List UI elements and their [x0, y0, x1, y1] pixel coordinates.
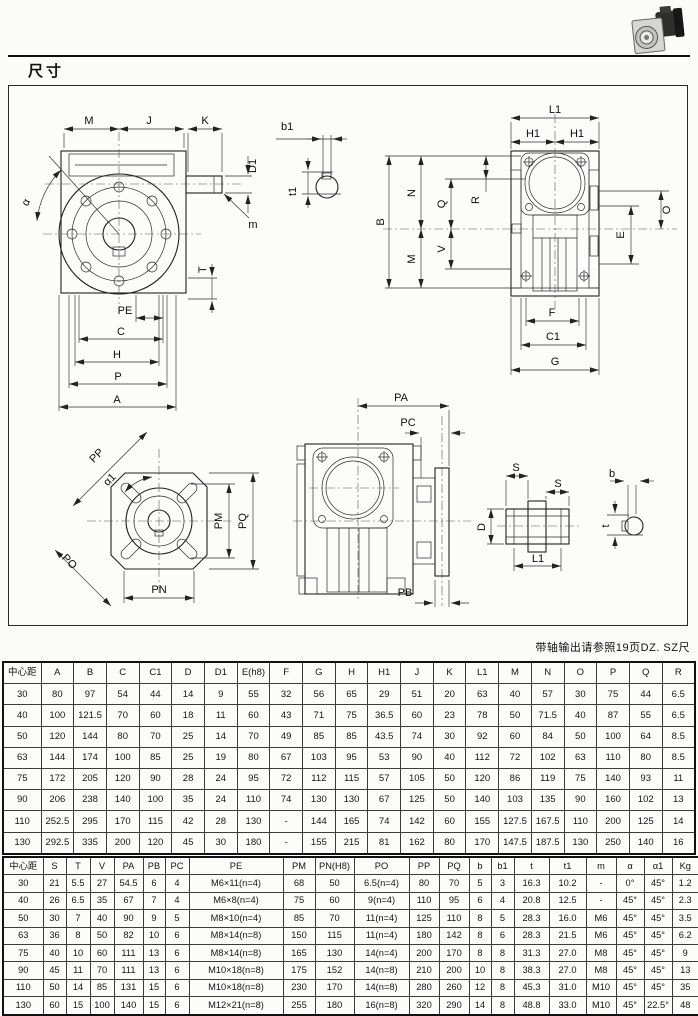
table-row: 40100121.5706018116043717536.56023785071… [3, 705, 695, 726]
table-cell: 63 [3, 927, 43, 944]
table-cell: 7 [143, 892, 165, 909]
table-cell: 75 [3, 944, 43, 961]
table-cell: 130 [3, 832, 41, 854]
table-cell: 1.2 [672, 875, 698, 892]
table-cell: 63 [466, 684, 499, 705]
table-cell: 100 [41, 705, 74, 726]
table-cell: 7 [66, 910, 90, 927]
table-cell: 110 [3, 811, 41, 832]
table-cell: 90 [114, 910, 143, 927]
table-cell: 13 [672, 962, 698, 979]
dim-front-c-label: C [117, 326, 125, 338]
table-row: 110252.52951701154228130-144165741426015… [3, 811, 695, 832]
table-cell: 45.3 [514, 979, 549, 996]
column-header: D1 [204, 662, 237, 684]
table-cell: 55 [629, 705, 662, 726]
table-cell: 22.5° [644, 997, 672, 1015]
table-cell: 28.3 [514, 910, 549, 927]
dim-front-d1-label: D1 [247, 159, 259, 173]
dimensions-table-1: 中心距ABCC1DD1E(h8)FGHH1JKL1MNOPQR308097544… [2, 661, 696, 855]
table-cell: 170 [315, 979, 354, 996]
table-cell: 111 [114, 944, 143, 961]
table-cell: 6 [165, 997, 189, 1015]
column-header: b [469, 857, 491, 875]
table-cell: 45° [616, 944, 644, 961]
table-cell: 10 [143, 927, 165, 944]
dim-side-n-label: N [406, 189, 418, 197]
table-cell: 50 [433, 790, 466, 811]
catalog-page: { "page": { "heading": "尺寸", "note": "带轴… [0, 0, 698, 1011]
shaft-output-note: 带轴输出请参照19页DZ. SZ尺 [388, 639, 690, 655]
table-cell: 95 [335, 747, 368, 768]
table-cell: 110 [237, 790, 270, 811]
table-cell: 110 [409, 892, 439, 909]
table-cell: 8 [491, 944, 514, 961]
table-cell: 120 [466, 768, 499, 789]
header-row: 中心距STVPAPBPCPEPMPN(H8)POPPPQbb1tt1mαα1Kg [3, 857, 698, 875]
table-cell: 140 [114, 997, 143, 1015]
table-cell: 100 [90, 997, 114, 1015]
table-cell: 27.0 [549, 962, 586, 979]
table-cell: 40 [499, 684, 532, 705]
table-cell: 102 [531, 747, 564, 768]
dim-side-g-label: G [551, 356, 560, 368]
dim-flange-pm-label: PM [213, 513, 225, 530]
table-row: 633685082106M8×14(n=8)15011511(n=4)18014… [3, 927, 698, 944]
dim-shaft-t-label: t [600, 524, 612, 527]
table-cell: 21 [43, 875, 66, 892]
table-cell: 45° [644, 962, 672, 979]
table-cell: 48.8 [514, 997, 549, 1015]
table-cell: 144 [303, 811, 336, 832]
table-cell: 80 [433, 832, 466, 854]
table-cell: 8.5 [662, 747, 695, 768]
table-cell: 3.5 [672, 910, 698, 927]
table-cell: 119 [531, 768, 564, 789]
dimension-drawings: M J K α D1 m T PE [9, 86, 686, 624]
dim-side-c1-label: C1 [546, 331, 560, 343]
table-cell: 120 [139, 832, 172, 854]
table-cell: 67 [270, 747, 303, 768]
table-cell: 3 [491, 875, 514, 892]
table-cell: 130 [564, 832, 597, 854]
table-cell: 8.5 [662, 726, 695, 747]
table-cell: 14(n=4) [354, 944, 409, 961]
table-cell: 110 [597, 747, 630, 768]
dim-side2-pa-label: PA [394, 392, 409, 404]
table-cell: 27.0 [549, 944, 586, 961]
table-cell: 50 [315, 875, 354, 892]
table-cell: 11 [204, 705, 237, 726]
table-cell: 155 [303, 832, 336, 854]
table-cell: 51 [401, 684, 434, 705]
dim-side-h1-left-label: H1 [526, 128, 540, 140]
table-cell: 53 [368, 747, 401, 768]
table-cell: 95 [237, 768, 270, 789]
table-cell: 200 [409, 944, 439, 961]
table-cell: 24 [204, 790, 237, 811]
table-cell: M6 [586, 910, 616, 927]
table-cell: 27 [90, 875, 114, 892]
table-cell: 121.5 [74, 705, 107, 726]
table-cell: 35 [172, 790, 205, 811]
table-cell: 54 [106, 684, 139, 705]
table-cell: 6 [165, 944, 189, 961]
table-cell: 28 [172, 768, 205, 789]
table-cell: 75 [283, 892, 315, 909]
dim-shaft-l1-label: L1 [532, 553, 544, 565]
table-cell: 40 [43, 944, 66, 961]
table-cell: 150 [283, 927, 315, 944]
table-cell: 85 [283, 910, 315, 927]
table-cell: 5.5 [66, 875, 90, 892]
table-cell: 16(n=8) [354, 997, 409, 1015]
column-header: PB [143, 857, 165, 875]
table-cell: 30 [3, 875, 43, 892]
table-cell: 33.0 [549, 997, 586, 1015]
dimensions-table: 中心距ABCC1DD1E(h8)FGHH1JKL1MNOPQR308097544… [2, 661, 696, 855]
table-cell: 45° [644, 875, 672, 892]
table-cell: 6.5 [662, 705, 695, 726]
table-cell: 45 [172, 832, 205, 854]
table-cell: 147.5 [499, 832, 532, 854]
table-cell: 24 [204, 768, 237, 789]
column-header: PQ [439, 857, 469, 875]
table-cell: 2.3 [672, 892, 698, 909]
table-cell: 95 [439, 892, 469, 909]
column-header: C [106, 662, 139, 684]
table-cell: 70 [439, 875, 469, 892]
table-cell: 11(n=4) [354, 927, 409, 944]
column-header: K [433, 662, 466, 684]
table-cell: 5 [469, 875, 491, 892]
table-cell: 40 [3, 705, 41, 726]
table-cell: 280 [409, 979, 439, 996]
column-header: E(h8) [237, 662, 270, 684]
table-cell: 105 [401, 768, 434, 789]
table-cell: 10.2 [549, 875, 586, 892]
table-cell: 295 [74, 811, 107, 832]
table-cell: 25 [172, 747, 205, 768]
column-header: 中心距 [3, 662, 41, 684]
table-cell: 6 [165, 927, 189, 944]
table-cell: 81 [368, 832, 401, 854]
dim-front-m-label: M [84, 115, 93, 127]
table-cell: 42 [172, 811, 205, 832]
dim-key-t1-label: t1 [287, 187, 299, 196]
column-header: B [74, 662, 107, 684]
key-section-drawing: b1 t1 [276, 121, 347, 208]
table-cell: 18 [172, 705, 205, 726]
table-cell: 85 [139, 747, 172, 768]
table-cell: 40 [433, 747, 466, 768]
table-cell: 48 [672, 997, 698, 1015]
column-header: M [499, 662, 532, 684]
column-header: PA [114, 857, 143, 875]
table-cell: 6 [165, 962, 189, 979]
table-cell: M8×14(n=8) [189, 927, 283, 944]
table-row: 110501485131156M10×18(n=8)23017014(n=8)2… [3, 979, 698, 996]
column-header: PP [409, 857, 439, 875]
table-cell: M6×11(n=4) [189, 875, 283, 892]
table-cell: 86 [499, 768, 532, 789]
column-header: N [531, 662, 564, 684]
table-cell: 135 [531, 790, 564, 811]
column-header: V [90, 857, 114, 875]
table-cell: 9(n=4) [354, 892, 409, 909]
column-header: T [66, 857, 90, 875]
table-cell: - [586, 892, 616, 909]
table-cell: 14 [204, 726, 237, 747]
table-cell: 54.5 [114, 875, 143, 892]
dim-side-r-label: R [470, 196, 482, 204]
table-cell: 45° [644, 892, 672, 909]
table-cell: 55 [237, 684, 270, 705]
table-cell: 90 [401, 747, 434, 768]
table-cell: 130 [315, 944, 354, 961]
table-cell: 30 [564, 684, 597, 705]
table-cell: M8 [586, 944, 616, 961]
side-view-drawing: L1 H1 H1 B N M Q V R [375, 104, 677, 375]
table-cell: 16.0 [549, 910, 586, 927]
table-cell: 60 [315, 892, 354, 909]
table-cell: 36.5 [368, 705, 401, 726]
table-cell: 170 [106, 811, 139, 832]
table-cell: 70 [139, 726, 172, 747]
table-cell: 50 [433, 768, 466, 789]
table-cell: 8 [469, 910, 491, 927]
table-row: 1306015100140156M12×21(n=8)25518016(n=8)… [3, 997, 698, 1015]
table-cell: 142 [401, 811, 434, 832]
table-cell: 35 [672, 979, 698, 996]
table-cell: 103 [303, 747, 336, 768]
table-cell: M10×18(n=8) [189, 962, 283, 979]
dim-side2-pb-label: PB [398, 587, 413, 599]
table-cell: 20.8 [514, 892, 549, 909]
column-header: F [270, 662, 303, 684]
table-cell: 40 [564, 705, 597, 726]
dim-side-f-label: F [549, 307, 556, 319]
table-cell: 111 [114, 962, 143, 979]
table-cell: 80 [41, 684, 74, 705]
table-cell: 140 [629, 832, 662, 854]
table-cell: 10 [469, 962, 491, 979]
table-cell: 12.5 [549, 892, 586, 909]
table-cell: 44 [629, 684, 662, 705]
column-header: O [564, 662, 597, 684]
table-cell: 230 [283, 979, 315, 996]
table-cell: 125 [409, 910, 439, 927]
dim-shaft-b-label: b [609, 468, 615, 480]
gearbox-product-photo [628, 6, 692, 56]
column-header: D [172, 662, 205, 684]
dim-side-q-label: Q [436, 199, 448, 208]
table-cell: 40 [90, 910, 114, 927]
table-cell: 130 [303, 790, 336, 811]
table-cell: 6 [165, 979, 189, 996]
table-cell: 110 [564, 811, 597, 832]
table-cell: 15 [143, 997, 165, 1015]
table-cell: 71.5 [531, 705, 564, 726]
column-header: A [41, 662, 74, 684]
table-cell: 78 [466, 705, 499, 726]
table-cell: 252.5 [41, 811, 74, 832]
table-cell: 206 [41, 790, 74, 811]
table-row: 50307409095M8×10(n=4)857011(n=4)12511085… [3, 910, 698, 927]
table-cell: 13 [143, 944, 165, 961]
dim-key-b1-label: b1 [281, 121, 293, 133]
table-cell: 60 [43, 997, 66, 1015]
table-cell: 175 [283, 962, 315, 979]
table-cell: 152 [315, 962, 354, 979]
table-cell: 72 [270, 768, 303, 789]
table-cell: 180 [237, 832, 270, 854]
table-cell: 23 [433, 705, 466, 726]
table-cell: 13 [662, 790, 695, 811]
table-cell: 115 [315, 927, 354, 944]
table-cell: 70 [90, 962, 114, 979]
dimension-drawings-panel: M J K α D1 m T PE [8, 85, 688, 626]
table-cell: 0° [616, 875, 644, 892]
column-header: R [662, 662, 695, 684]
table-cell: 50 [43, 979, 66, 996]
table-cell: 6.2 [672, 927, 698, 944]
table-cell: 15 [143, 979, 165, 996]
table-cell: M6×8(n=4) [189, 892, 283, 909]
table-cell: 12 [469, 979, 491, 996]
table-cell: 238 [74, 790, 107, 811]
table-cell: M12×21(n=8) [189, 997, 283, 1015]
table-cell: 90 [3, 790, 41, 811]
table-cell: 205 [74, 768, 107, 789]
header-row: 中心距ABCC1DD1E(h8)FGHH1JKL1MNOPQR [3, 662, 695, 684]
table-cell: 112 [303, 768, 336, 789]
column-header: PN(H8) [315, 857, 354, 875]
dim-flange-pq-label: PQ [237, 513, 249, 529]
table-cell: 112 [466, 747, 499, 768]
table-cell: - [270, 811, 303, 832]
column-header: PM [283, 857, 315, 875]
column-header: PE [189, 857, 283, 875]
table-row: 7517220512090282495721121155710550120861… [3, 768, 695, 789]
table-cell: 67 [368, 790, 401, 811]
table-cell: 43 [270, 705, 303, 726]
table-cell: 63 [3, 747, 41, 768]
column-header: H1 [368, 662, 401, 684]
table-cell: 110 [439, 910, 469, 927]
table-cell: 80 [629, 747, 662, 768]
table-cell: 200 [439, 962, 469, 979]
table-cell: 320 [409, 997, 439, 1015]
header-rule [8, 55, 690, 57]
table-cell: 30 [43, 910, 66, 927]
dim-front-alpha-label: α [20, 196, 34, 208]
table-cell: 60 [499, 726, 532, 747]
table-cell: 75 [3, 768, 41, 789]
table-cell: 45° [644, 944, 672, 961]
table-cell: 100 [597, 726, 630, 747]
dim-flange-po-label: PO [59, 552, 79, 572]
table-cell: 162 [401, 832, 434, 854]
column-header: Q [629, 662, 662, 684]
dim-flange-pp-label: PP [87, 446, 106, 465]
table-cell: 200 [597, 811, 630, 832]
table-cell: 45° [616, 927, 644, 944]
dim-front-m-shaft-label: m [248, 219, 257, 231]
table-cell: 6.5(n=4) [354, 875, 409, 892]
table-cell: 120 [41, 726, 74, 747]
table-cell: 8 [491, 997, 514, 1015]
table-cell: 50 [3, 726, 41, 747]
table-cell: 103 [499, 790, 532, 811]
column-header: G [303, 662, 336, 684]
table-cell: 70 [237, 726, 270, 747]
table-cell: 172 [41, 768, 74, 789]
dim-front-j-label: J [146, 115, 152, 127]
table-cell: 125 [629, 811, 662, 832]
table-cell: 115 [139, 811, 172, 832]
column-header: t1 [549, 857, 586, 875]
table-cell: 60 [401, 705, 434, 726]
table-cell: 45° [644, 910, 672, 927]
dim-front-h-label: H [113, 349, 121, 361]
table-cell: 45° [616, 997, 644, 1015]
table-cell: 9 [143, 910, 165, 927]
dim-side-h1-right-label: H1 [570, 128, 584, 140]
flange-view-drawing: PP α1 PO PM PQ PN [55, 432, 259, 606]
table-cell: M10×18(n=8) [189, 979, 283, 996]
table-cell: 85 [90, 979, 114, 996]
table-cell: 160 [597, 790, 630, 811]
page-title: 尺寸 [28, 60, 64, 81]
table-row: 50120144807025147049858543.5743092608450… [3, 726, 695, 747]
table-cell: 80 [237, 747, 270, 768]
dim-shaft-s1-label: S [512, 462, 519, 474]
table-cell: 200 [106, 832, 139, 854]
column-header: L1 [466, 662, 499, 684]
table-cell: 10 [66, 944, 90, 961]
table-cell: 57 [531, 684, 564, 705]
table-cell: 85 [303, 726, 336, 747]
table-cell: 50 [564, 726, 597, 747]
table-cell: 50 [3, 910, 43, 927]
table-cell: 74 [368, 811, 401, 832]
table-cell: 70 [315, 910, 354, 927]
table-row: 75401060111136M8×14(n=8)16513014(n=4)200… [3, 944, 698, 961]
table-cell: 57 [368, 768, 401, 789]
table-cell: 45 [43, 962, 66, 979]
table-cell: 167.5 [531, 811, 564, 832]
dim-front-t-label: T [197, 266, 209, 273]
table-cell: 90 [564, 790, 597, 811]
table-cell: 8 [469, 927, 491, 944]
dim-front-p-label: P [114, 371, 121, 383]
dim-side-m-label: M [406, 254, 418, 263]
table-cell: 74 [401, 726, 434, 747]
column-header: PO [354, 857, 409, 875]
column-header: b1 [491, 857, 514, 875]
table-cell: 260 [439, 979, 469, 996]
table-cell: 84 [531, 726, 564, 747]
table-cell: 130 [3, 997, 43, 1015]
table-cell: 43.5 [368, 726, 401, 747]
table-cell: 127.5 [499, 811, 532, 832]
table-cell: 45° [616, 962, 644, 979]
table-cell: 8 [491, 962, 514, 979]
table-cell: 125 [401, 790, 434, 811]
table-cell: 142 [439, 927, 469, 944]
table-cell: 102 [629, 790, 662, 811]
